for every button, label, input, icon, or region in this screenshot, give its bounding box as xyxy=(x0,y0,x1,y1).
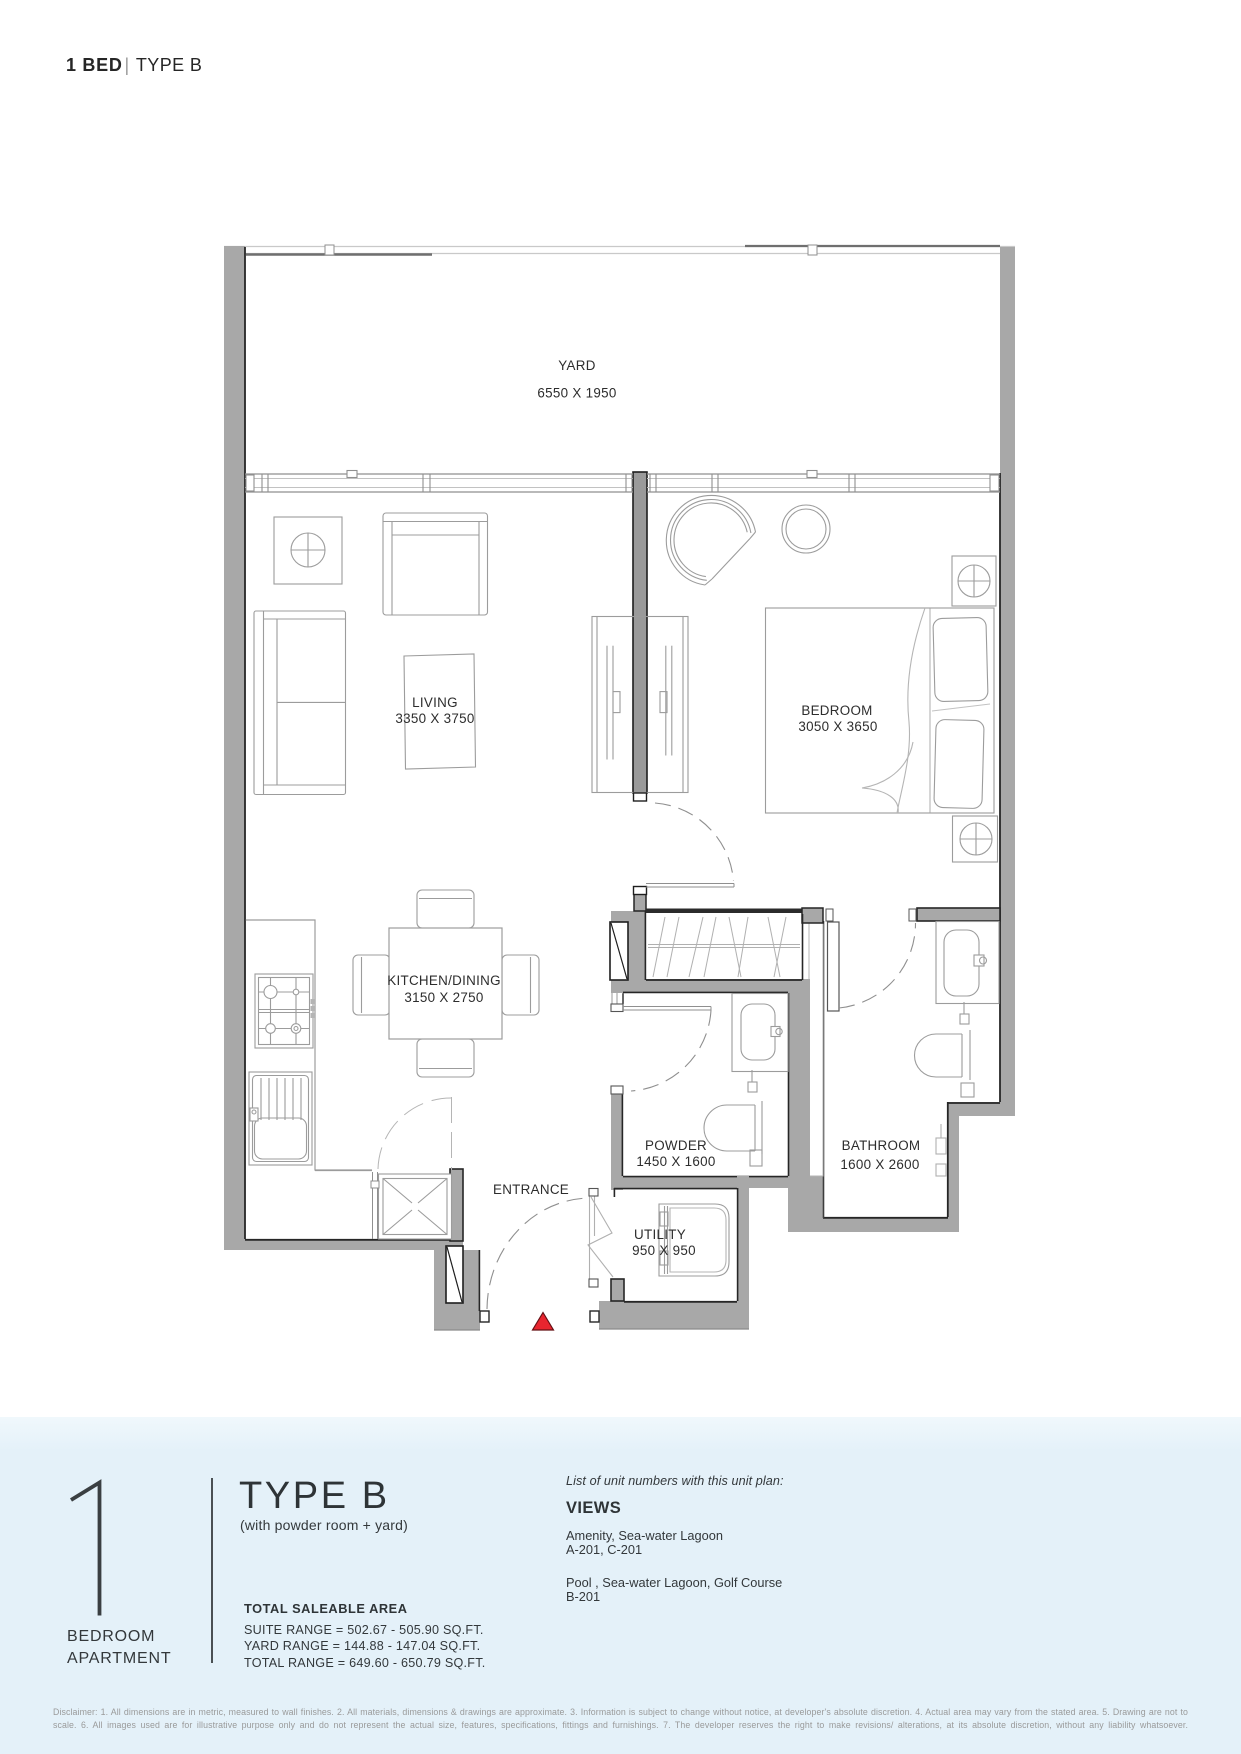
svg-text:3050 X 3650: 3050 X 3650 xyxy=(798,719,877,734)
svg-text:KITCHEN/DINING: KITCHEN/DINING xyxy=(387,973,501,988)
svg-text:3350 X 3750: 3350 X 3750 xyxy=(395,711,474,726)
svg-text:1600 X 2600: 1600 X 2600 xyxy=(840,1157,919,1172)
svg-text:UTILITY: UTILITY xyxy=(634,1227,686,1242)
svg-text:POWDER: POWDER xyxy=(645,1138,707,1153)
svg-text:1450 X 1600: 1450 X 1600 xyxy=(636,1154,715,1169)
svg-text:BATHROOM: BATHROOM xyxy=(842,1138,921,1153)
svg-text:ENTRANCE: ENTRANCE xyxy=(493,1182,569,1197)
svg-text:6550 X 1950: 6550 X 1950 xyxy=(537,386,616,401)
svg-text:LIVING: LIVING xyxy=(412,695,458,710)
svg-text:YARD: YARD xyxy=(558,358,595,373)
svg-text:950 X 950: 950 X 950 xyxy=(632,1243,696,1258)
svg-text:3150 X 2750: 3150 X 2750 xyxy=(404,990,483,1005)
svg-text:BEDROOM: BEDROOM xyxy=(801,703,872,718)
